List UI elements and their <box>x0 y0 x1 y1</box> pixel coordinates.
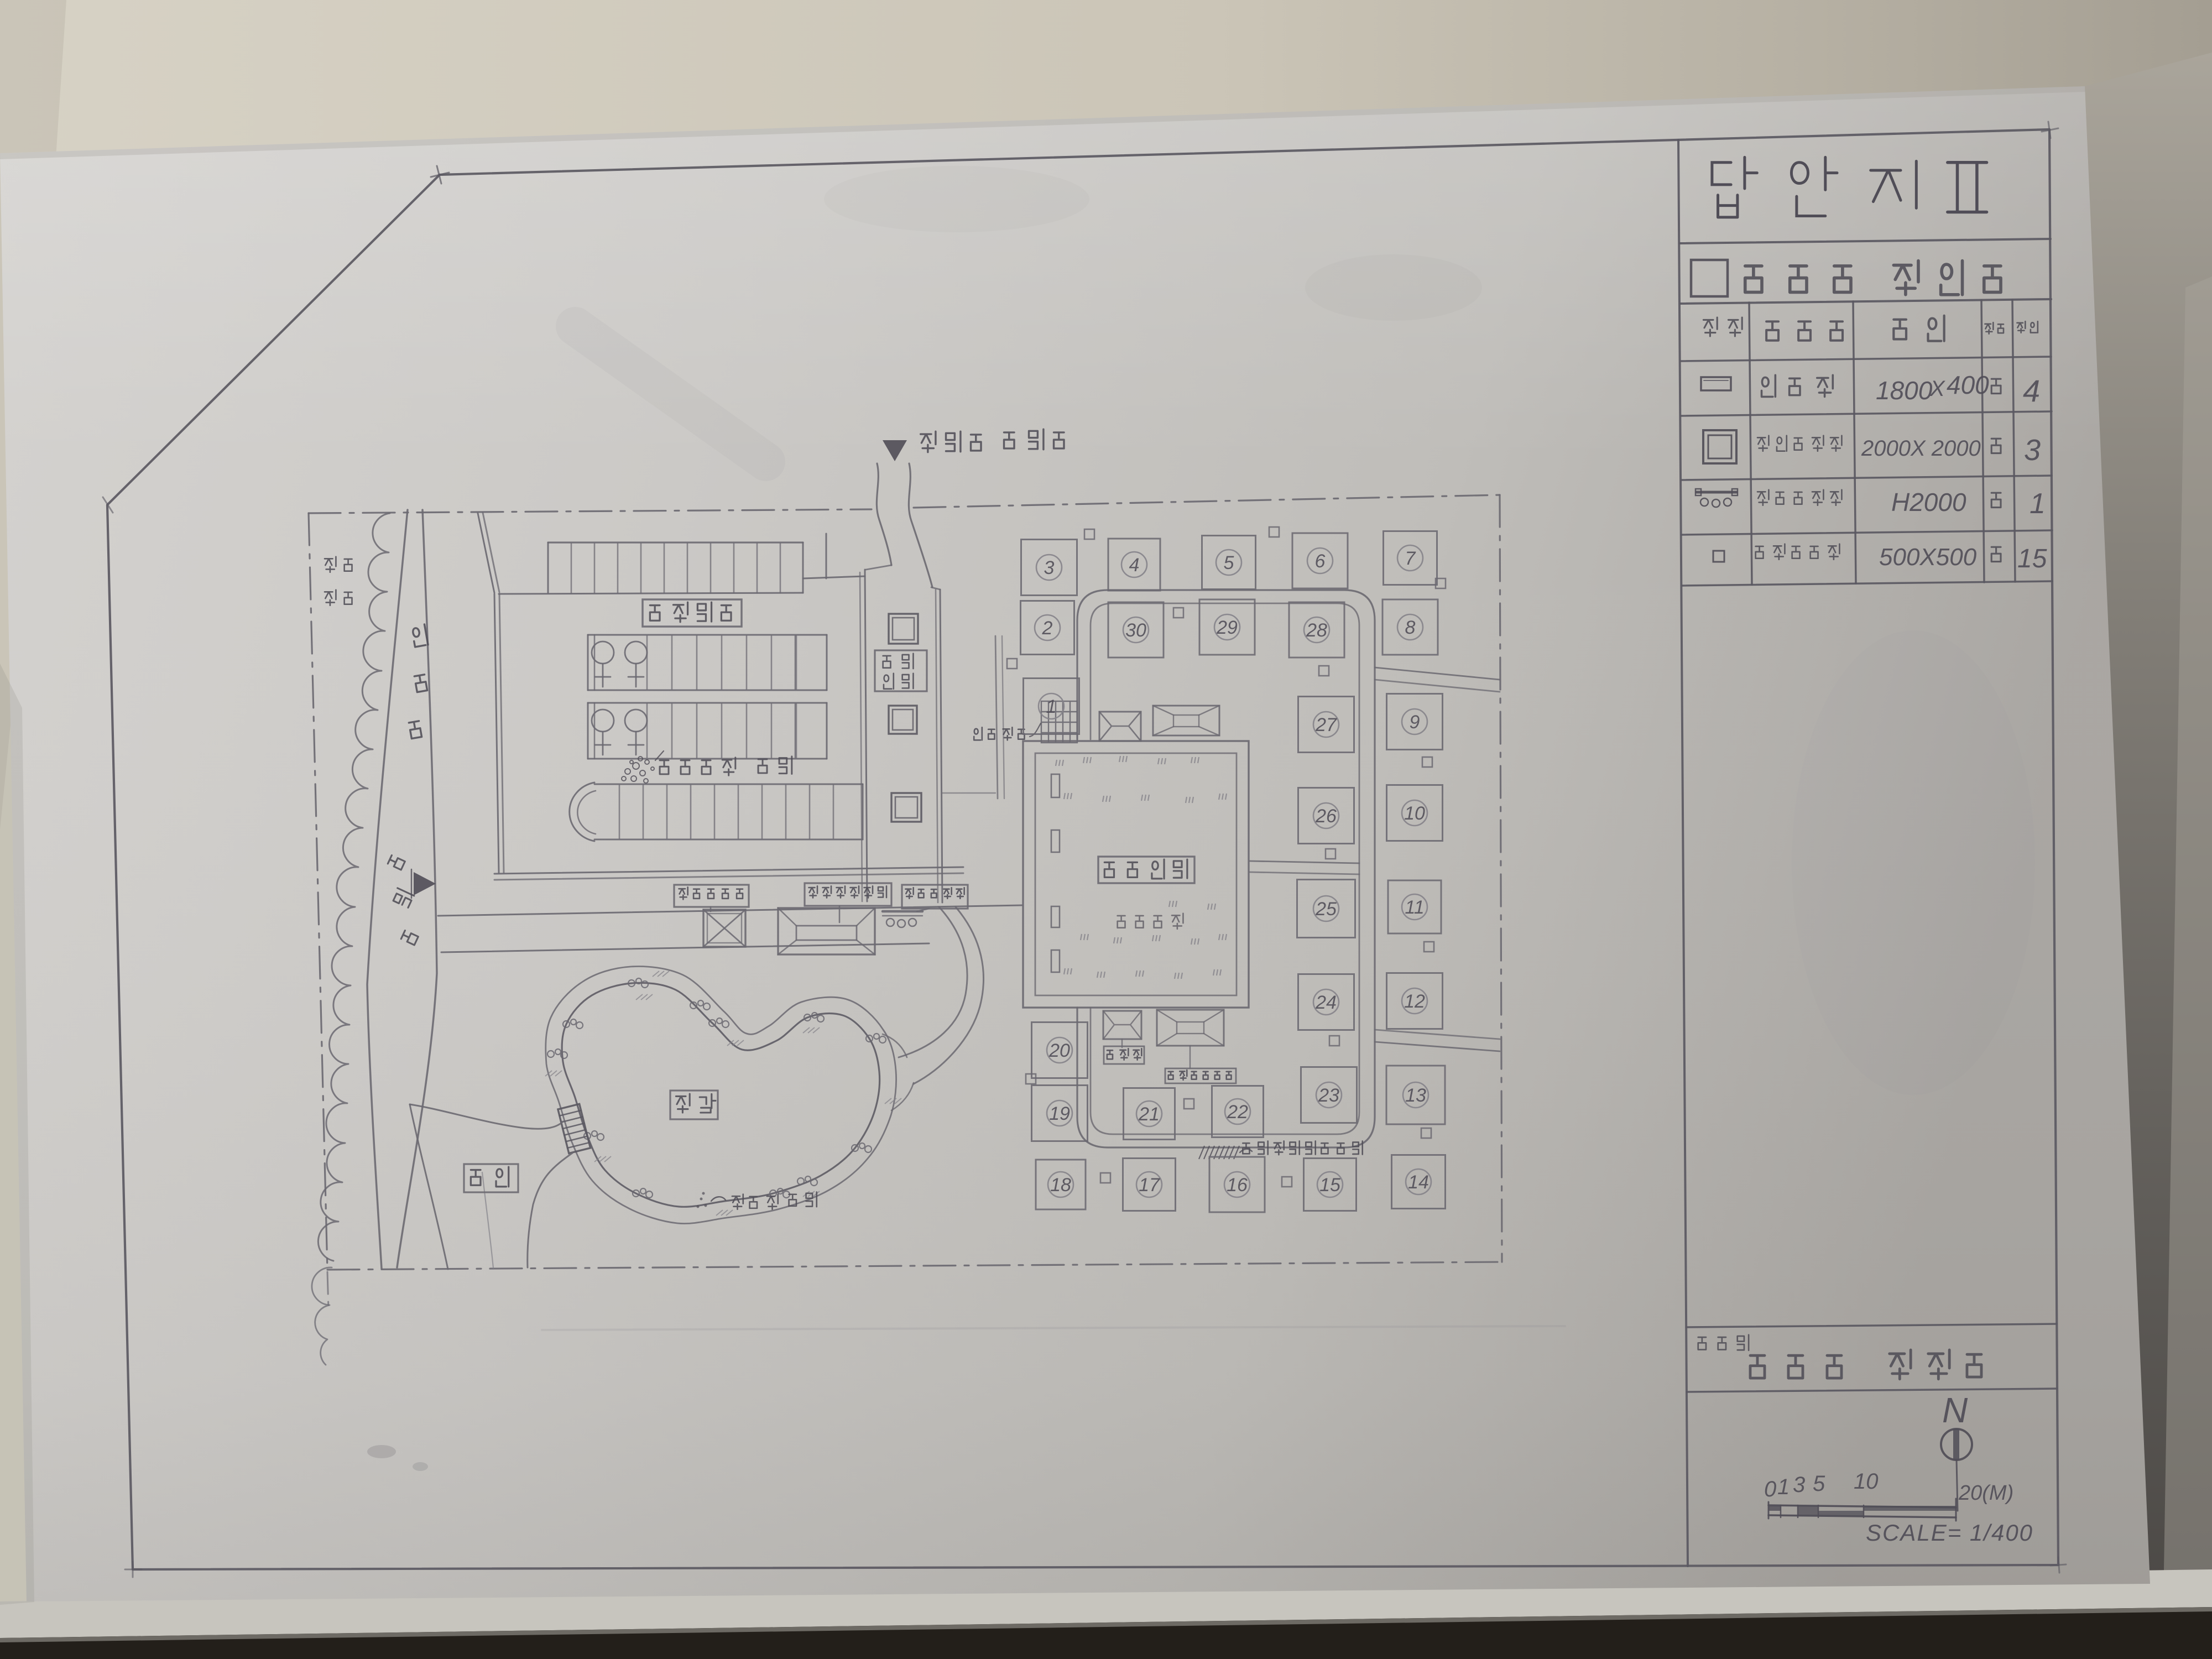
svg-text:9: 9 <box>1410 712 1420 733</box>
svg-text:1800: 1800 <box>1876 376 1933 405</box>
svg-text:25: 25 <box>1315 899 1337 920</box>
svg-text:24: 24 <box>1315 992 1337 1013</box>
svg-text:7: 7 <box>1405 548 1416 569</box>
svg-text:3: 3 <box>1044 557 1055 578</box>
svg-text:1: 1 <box>1046 696 1057 717</box>
svg-text:21: 21 <box>1138 1104 1160 1125</box>
svg-text:1: 1 <box>2030 488 2046 520</box>
svg-text:28: 28 <box>1306 620 1327 641</box>
svg-text:20(M): 20(M) <box>1958 1481 2013 1505</box>
svg-text:3: 3 <box>2024 434 2041 467</box>
svg-text:5: 5 <box>1813 1472 1825 1496</box>
svg-text:10: 10 <box>1854 1469 1879 1494</box>
svg-text:15: 15 <box>1319 1175 1340 1196</box>
svg-text:1: 1 <box>1777 1475 1790 1499</box>
svg-text:23: 23 <box>1318 1085 1339 1106</box>
svg-text:30: 30 <box>1125 620 1146 641</box>
svg-text:17: 17 <box>1139 1175 1160 1196</box>
svg-text:8: 8 <box>1405 617 1416 638</box>
svg-text:H2000: H2000 <box>1891 488 1966 517</box>
svg-text:6: 6 <box>1315 551 1326 572</box>
svg-text:5: 5 <box>1224 552 1234 573</box>
svg-text:14: 14 <box>1408 1172 1429 1193</box>
svg-text:26: 26 <box>1315 806 1337 827</box>
svg-text:0: 0 <box>1764 1477 1776 1501</box>
svg-text:2: 2 <box>1042 618 1053 639</box>
svg-text:2000X 2000: 2000X 2000 <box>1861 436 1981 461</box>
svg-text:19: 19 <box>1049 1103 1070 1124</box>
svg-text:12: 12 <box>1404 991 1425 1012</box>
svg-text:18: 18 <box>1050 1175 1071 1196</box>
svg-text:16: 16 <box>1227 1175 1248 1196</box>
svg-text:500X500: 500X500 <box>1879 544 1977 571</box>
svg-text:27: 27 <box>1315 714 1337 735</box>
svg-text:13: 13 <box>1405 1085 1426 1106</box>
svg-text:22: 22 <box>1227 1102 1248 1123</box>
svg-text:SCALE= 1/400: SCALE= 1/400 <box>1866 1520 2033 1546</box>
svg-text:20: 20 <box>1048 1040 1070 1061</box>
svg-text:X: X <box>1929 377 1945 401</box>
svg-text:4: 4 <box>1129 555 1140 576</box>
svg-text:11: 11 <box>1405 897 1424 918</box>
svg-text:15: 15 <box>2017 544 2047 573</box>
svg-text:400: 400 <box>1947 371 1989 399</box>
svg-text:4: 4 <box>2023 373 2040 408</box>
svg-text:3: 3 <box>1793 1473 1805 1497</box>
svg-text:10: 10 <box>1404 803 1425 824</box>
svg-text:29: 29 <box>1216 617 1238 638</box>
svg-text:N: N <box>1942 1390 1968 1430</box>
